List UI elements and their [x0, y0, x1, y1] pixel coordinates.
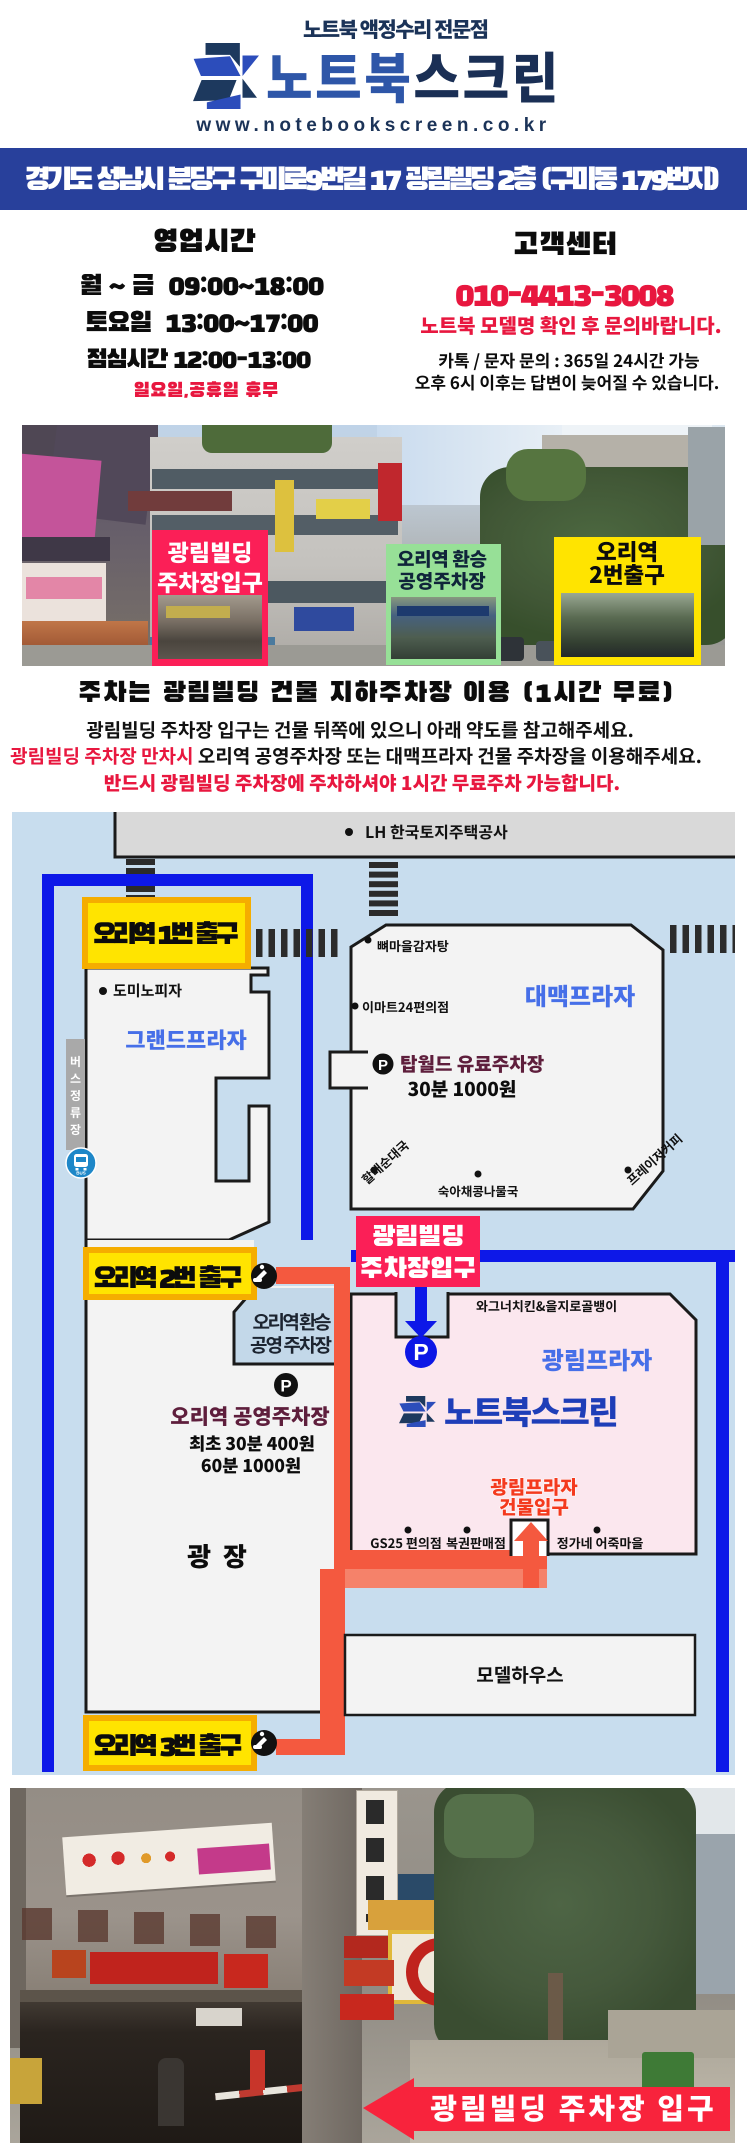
- svg-text:P: P: [378, 1057, 388, 1074]
- svg-text:BUS: BUS: [76, 1171, 86, 1176]
- svg-text:P: P: [413, 1339, 428, 1365]
- svg-text:P: P: [280, 1377, 291, 1396]
